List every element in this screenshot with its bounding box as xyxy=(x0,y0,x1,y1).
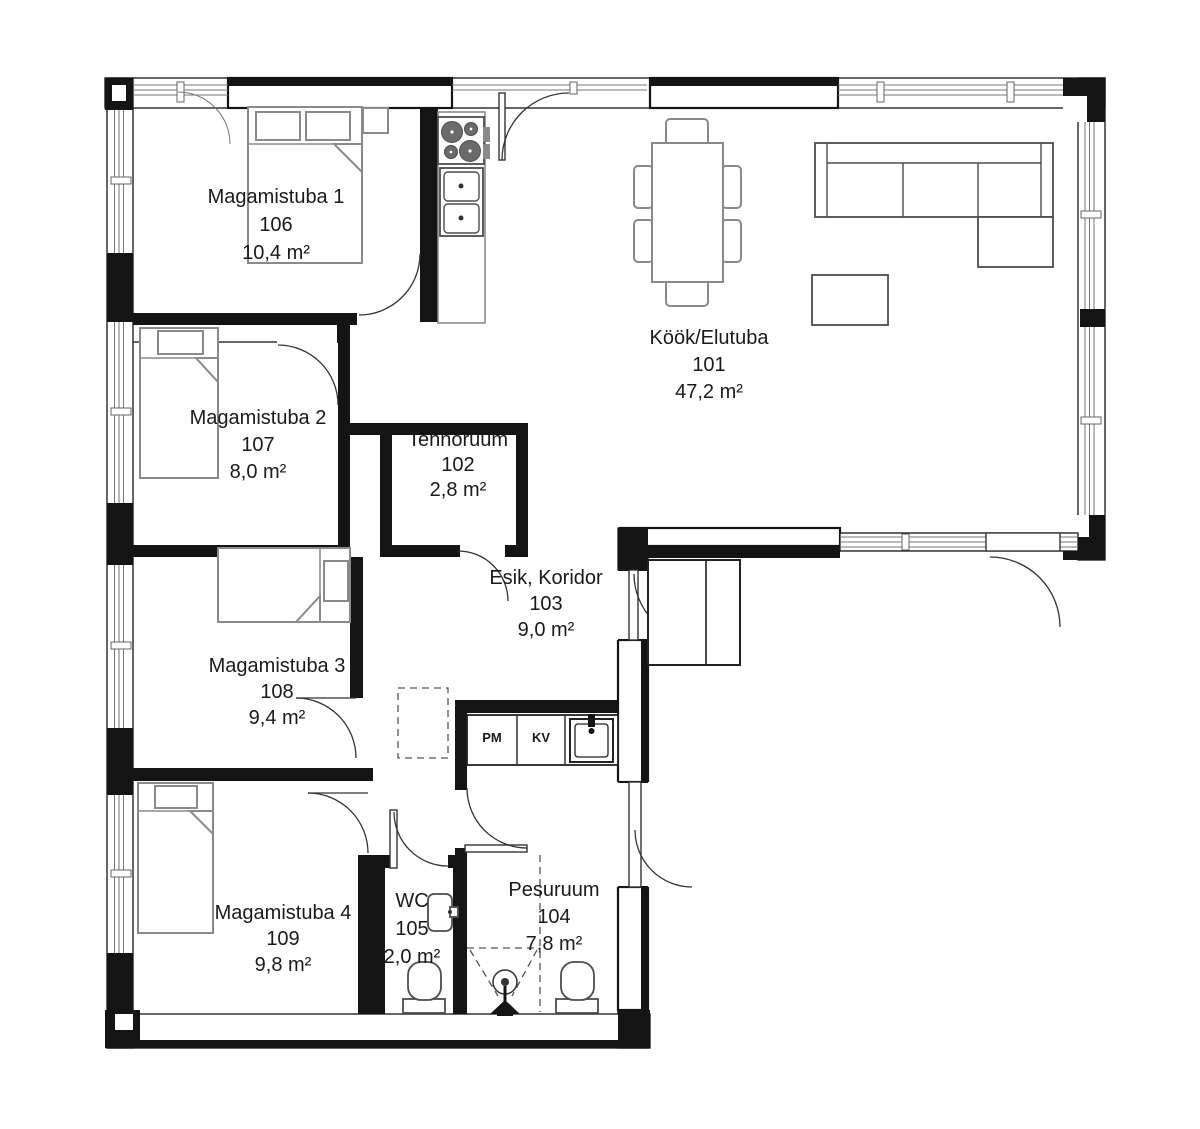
room-number: 106 xyxy=(166,211,386,239)
room-label-kook-elutuba: Köök/Elutuba 101 47,2 m² xyxy=(599,325,819,406)
room-number: 101 xyxy=(599,352,819,379)
room-label-magamistuba-1: Magamistuba 1 106 10,4 m² xyxy=(166,183,386,267)
room-label-magamistuba-3: Magamistuba 3 108 9,4 m² xyxy=(167,653,387,731)
entry-wardrobe xyxy=(648,560,740,665)
kitchen-sink xyxy=(440,168,483,236)
room-name: Magamistuba 4 xyxy=(173,900,393,926)
room-area: 10,4 m² xyxy=(166,239,386,267)
laundry-sink xyxy=(570,714,613,762)
room-label-magamistuba-4: Magamistuba 4 109 9,8 m² xyxy=(173,900,393,978)
room-area: 2,8 m² xyxy=(348,478,568,503)
room-name: Esik, Koridor xyxy=(436,565,656,591)
room-name: Tehnoruum xyxy=(348,428,568,453)
room-area: 8,0 m² xyxy=(148,459,368,486)
room-number: 103 xyxy=(436,591,656,617)
room-number: 107 xyxy=(148,432,368,459)
room-label-magamistuba-2: Magamistuba 2 107 8,0 m² xyxy=(148,405,368,486)
floor-plan: Köök/Elutuba 101 47,2 m² Tehnoruum 102 2… xyxy=(0,0,1200,1129)
room-number: 109 xyxy=(173,926,393,952)
stove xyxy=(438,117,490,164)
coffee-table xyxy=(812,275,888,325)
room-area: 9,0 m² xyxy=(436,617,656,643)
pesuruum-toilet xyxy=(556,962,598,1013)
sofa xyxy=(815,143,1053,267)
room-name: Magamistuba 1 xyxy=(166,183,386,211)
room-name: Magamistuba 3 xyxy=(167,653,387,679)
bed-3 xyxy=(218,548,350,622)
room-area: 47,2 m² xyxy=(599,379,819,406)
nightstand xyxy=(363,108,388,133)
room-number: 102 xyxy=(348,453,568,478)
room-number: 108 xyxy=(167,679,387,705)
dining-table xyxy=(652,143,723,282)
room-name: Köök/Elutuba xyxy=(599,325,819,352)
room-name: Magamistuba 2 xyxy=(148,405,368,432)
dryer-label: KV xyxy=(519,730,563,746)
room-label-tehnoruum: Tehnoruum 102 2,8 m² xyxy=(348,428,568,503)
room-area: 9,8 m² xyxy=(173,952,393,978)
room-area: 9,4 m² xyxy=(167,705,387,731)
room-label-esik-koridor: Esik, Koridor 103 9,0 m² xyxy=(436,565,656,643)
washing-machine-label: PM xyxy=(470,730,514,746)
reserved-appliance-dashed xyxy=(398,688,448,758)
